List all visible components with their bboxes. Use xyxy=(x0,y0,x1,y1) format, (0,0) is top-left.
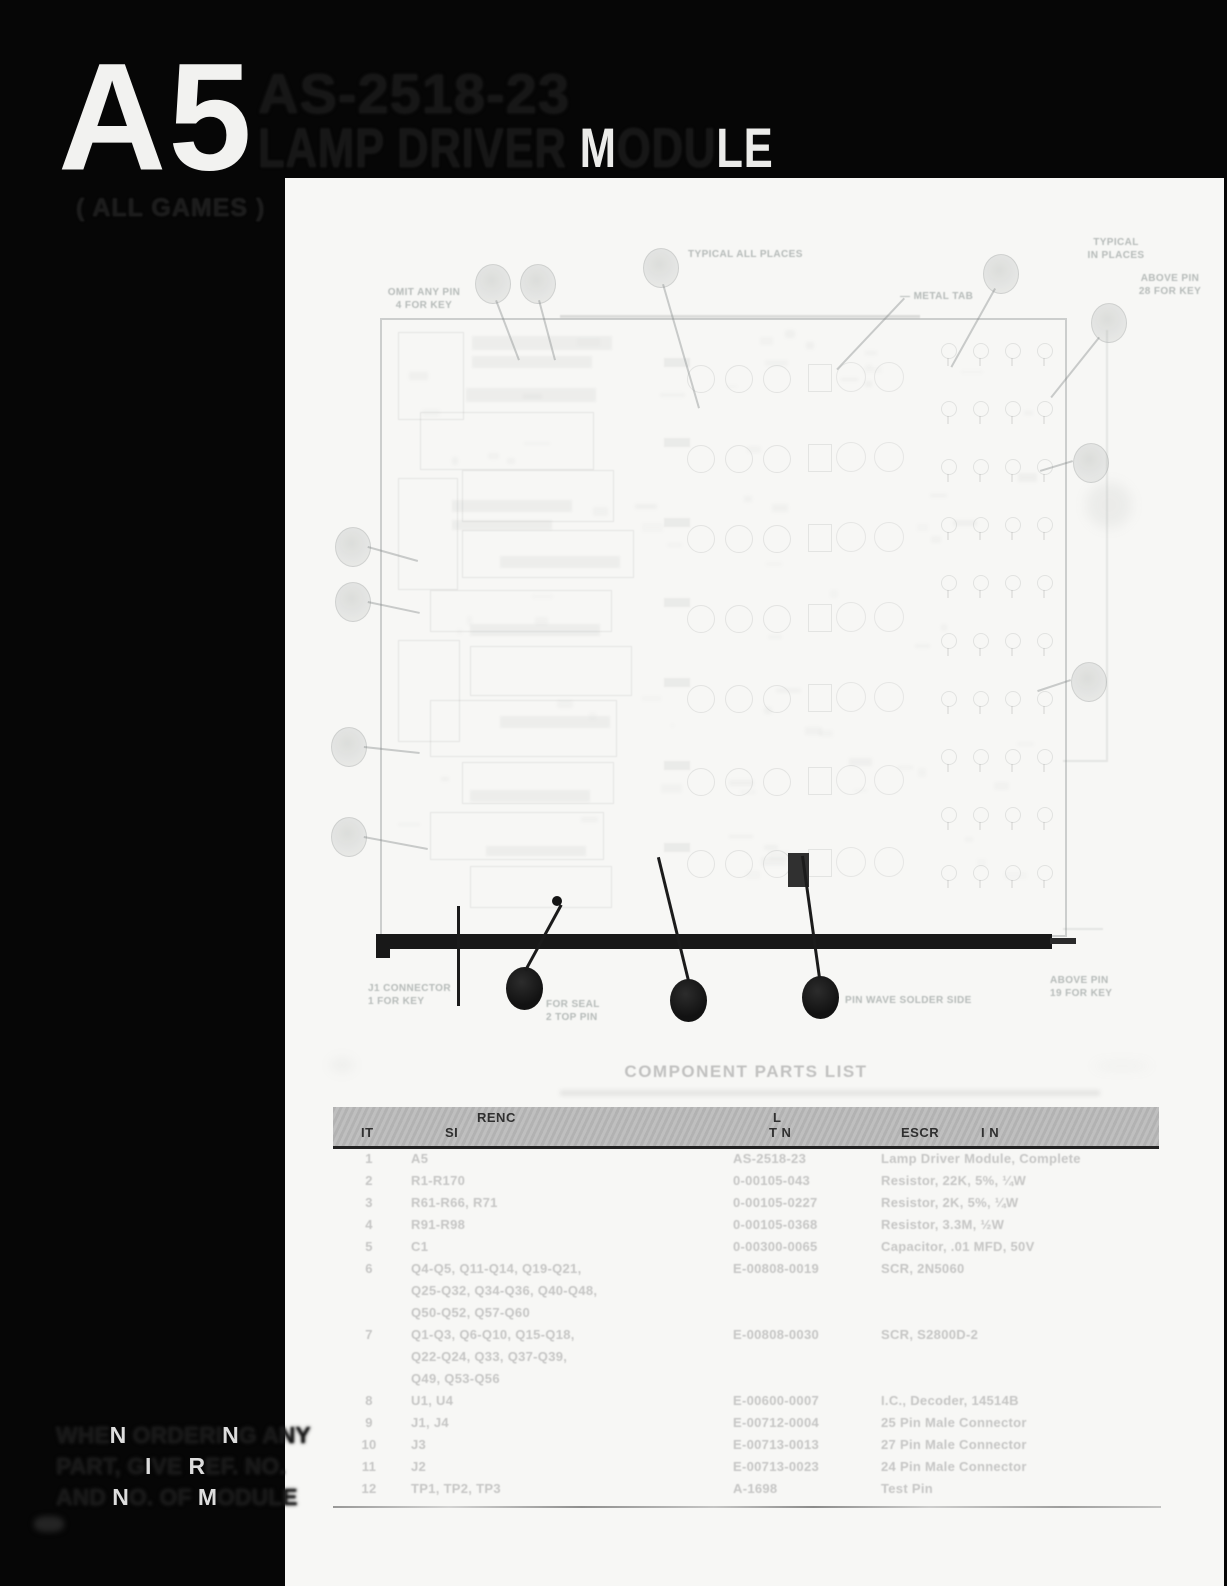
part-reference-designation: U1, U4 xyxy=(411,1393,453,1408)
table-bottom-rule xyxy=(333,1506,1161,1508)
part-reference-designation: Q1-Q3, Q6-Q10, Q15-Q18, xyxy=(411,1327,575,1342)
parts-table-row-line: 10J3E-00713-001327 Pin Male Connector xyxy=(333,1437,1159,1459)
col-part-no-header-top: L xyxy=(773,1110,781,1125)
callout-balloon-faint xyxy=(1073,443,1109,483)
text-segment: VE xyxy=(151,1453,188,1479)
parts-table-row-line: 8U1, U4E-00600-0007I.C., Decoder, 14514B xyxy=(333,1393,1159,1415)
text-segment: LE xyxy=(716,116,773,179)
part-reference-designation: C1 xyxy=(411,1239,428,1254)
module-name-title: LAMP DRIVER MODULE xyxy=(258,120,774,176)
part-reference-designation: R91-R98 xyxy=(411,1217,465,1232)
text-segment: N xyxy=(112,1484,129,1510)
text-segment: AND xyxy=(56,1484,112,1510)
part-description: SCR, 2N5060 xyxy=(881,1261,965,1276)
part-number: 0-00300-0065 xyxy=(733,1239,818,1254)
circuit-board-outline xyxy=(380,318,1067,937)
callout-label-wave-solder: PIN WAVE SOLDER SIDE xyxy=(845,994,1040,1007)
part-item-number: 4 xyxy=(353,1217,385,1232)
callout-balloon-solid xyxy=(506,967,543,1010)
parts-table-header: IT RENC SI L T N ESCR I N xyxy=(333,1107,1159,1149)
part-reference-designation: Q50-Q52, Q57-Q60 xyxy=(411,1305,530,1320)
callout-label-line: J1 CONNECTOR xyxy=(368,982,493,995)
all-games-subtitle: ( ALL GAMES ) xyxy=(76,194,265,223)
callout-label-seal-pin: FOR SEAL2 TOP PIN xyxy=(546,998,651,1024)
part-description: Test Pin xyxy=(881,1481,933,1496)
part-item-number: 9 xyxy=(353,1415,385,1430)
text-segment: G ANY xyxy=(239,1422,311,1448)
callout-balloon-solid xyxy=(802,976,839,1019)
callout-leader-line xyxy=(458,906,461,1006)
part-reference-designation: A5 xyxy=(411,1151,428,1166)
part-number: 0-00105-0227 xyxy=(733,1195,818,1210)
parts-table-row-line: 5C10-00300-0065Capacitor, .01 MFD, 50V xyxy=(333,1239,1159,1261)
part-reference-designation: R61-R66, R71 xyxy=(411,1195,498,1210)
callout-label-line: PIN WAVE SOLDER SIDE xyxy=(845,994,1040,1007)
text-segment: ORDERI xyxy=(126,1422,222,1448)
part-number: 0-00105-043 xyxy=(733,1173,810,1188)
part-reference-designation: Q4-Q5, Q11-Q14, Q19-Q21, xyxy=(411,1261,582,1276)
part-description: 25 Pin Male Connector xyxy=(881,1415,1027,1430)
callout-balloon-faint xyxy=(1091,303,1127,343)
parts-table-rows: 1A5AS-2518-23Lamp Driver Module, Complet… xyxy=(333,1151,1159,1503)
parts-table-row-line: 3R61-R66, R710-00105-0227Resistor, 2K, 5… xyxy=(333,1195,1159,1217)
parts-table-row-line: Q25-Q32, Q34-Q36, Q40-Q48, xyxy=(333,1283,1159,1305)
scan-smudge xyxy=(1086,482,1132,528)
callout-label-above-pin-top: ABOVE PIN28 FOR KEY xyxy=(1120,272,1220,298)
callout-balloon-faint xyxy=(475,264,511,304)
text-segment: EF. NO. xyxy=(205,1453,286,1479)
parts-table-row-line: Q50-Q52, Q57-Q60 xyxy=(333,1305,1159,1327)
parts-table-row-line: 12TP1, TP2, TP3A-1698Test Pin xyxy=(333,1481,1159,1503)
callout-label-typical-places: TYPICAL ALL PLACES xyxy=(688,248,858,261)
text-segment: ODU xyxy=(617,116,716,179)
callout-label-above-pin-bottom: ABOVE PIN19 FOR KEY xyxy=(1050,974,1155,1000)
part-reference-designation: R1-R170 xyxy=(411,1173,465,1188)
part-description: Resistor, 2K, 5%, ¼W xyxy=(881,1195,1019,1210)
col-description-header-a: ESCR xyxy=(901,1125,939,1140)
callout-balloon-faint xyxy=(520,264,556,304)
callout-label-line: TYPICAL xyxy=(1070,236,1162,249)
col-reference-header-bottom: SI xyxy=(445,1125,458,1140)
part-description: SCR, S2800D-2 xyxy=(881,1327,978,1342)
part-item-number: 5 xyxy=(353,1239,385,1254)
part-description: 27 Pin Male Connector xyxy=(881,1437,1027,1452)
col-reference-header-top: RENC xyxy=(477,1110,516,1125)
board-edge-notch xyxy=(376,948,390,958)
module-id-label: A5 xyxy=(58,40,254,193)
scanned-manual-page: A5 AS-2518-23 LAMP DRIVER MODULE ( ALL G… xyxy=(0,0,1227,1586)
callout-label-line: 19 FOR KEY xyxy=(1050,987,1155,1000)
part-description: 24 Pin Male Connector xyxy=(881,1459,1027,1474)
text-segment: M xyxy=(580,116,617,179)
part-item-number: 1 xyxy=(353,1151,385,1166)
part-description: Lamp Driver Module, Complete xyxy=(881,1151,1081,1166)
callout-label-typical-in-places: TYPICALIN PLACES xyxy=(1070,236,1162,262)
part-number: E-00808-0019 xyxy=(733,1261,819,1276)
part-description: Capacitor, .01 MFD, 50V xyxy=(881,1239,1035,1254)
callout-label-line: 4 FOR KEY xyxy=(368,299,480,312)
callout-label-line: 2 TOP PIN xyxy=(546,1011,651,1024)
col-description-header-b: I N xyxy=(981,1125,999,1140)
part-reference-designation: J3 xyxy=(411,1437,426,1452)
part-item-number: 6 xyxy=(353,1261,385,1276)
part-number: E-00600-0007 xyxy=(733,1393,819,1408)
callout-balloon-faint xyxy=(643,248,679,288)
callout-balloon-faint xyxy=(335,582,371,622)
text-segment: PART, G xyxy=(56,1453,145,1479)
parts-table-row-line: 11J2E-00713-002324 Pin Male Connector xyxy=(333,1459,1159,1481)
callout-label-line: ABOVE PIN xyxy=(1120,272,1220,285)
part-description: Resistor, 3.3M, ½W xyxy=(881,1217,1004,1232)
part-number: A-1698 xyxy=(733,1481,777,1496)
part-item-number: 3 xyxy=(353,1195,385,1210)
parts-table-row-line: 1A5AS-2518-23Lamp Driver Module, Complet… xyxy=(333,1151,1159,1173)
page-number-smudge xyxy=(34,1516,64,1532)
board-edge-connector-bar xyxy=(376,934,1052,949)
text-segment: O. OF xyxy=(129,1484,198,1510)
text-segment: N xyxy=(222,1422,239,1448)
part-item-number: 12 xyxy=(353,1481,385,1496)
part-reference-designation: Q22-Q24, Q33, Q37-Q39, xyxy=(411,1349,567,1364)
parts-table-row-line: 9J1, J4E-00712-000425 Pin Male Connector xyxy=(333,1415,1159,1437)
part-number: E-00808-0030 xyxy=(733,1327,819,1342)
text-segment: WHE xyxy=(56,1422,110,1448)
callout-balloon-faint xyxy=(331,727,367,767)
parts-table-row-line: 7Q1-Q3, Q6-Q10, Q15-Q18,E-00808-0030SCR,… xyxy=(333,1327,1159,1349)
text-segment: R xyxy=(189,1453,206,1479)
part-item-number: 7 xyxy=(353,1327,385,1342)
part-item-number: 8 xyxy=(353,1393,385,1408)
callout-balloon-faint xyxy=(983,254,1019,294)
parts-table-row-line: 4R91-R980-00105-0368Resistor, 3.3M, ½W xyxy=(333,1217,1159,1239)
text-segment: M xyxy=(198,1484,217,1510)
part-reference-designation: Q49, Q53-Q56 xyxy=(411,1371,500,1386)
col-part-no-header-bottom: T N xyxy=(769,1125,791,1140)
margin-ordering-note: WHEN ORDERING ANYPART, GIVE REF. NO.AND … xyxy=(56,1420,316,1513)
part-item-number: 11 xyxy=(353,1459,385,1474)
text-segment: ODULE xyxy=(217,1484,298,1510)
callout-label-line: FOR SEAL xyxy=(546,998,651,1011)
callout-balloon-faint xyxy=(1071,662,1107,702)
part-reference-designation: Q25-Q32, Q34-Q36, Q40-Q48, xyxy=(411,1283,597,1298)
part-description: Resistor, 22K, 5%, ¼W xyxy=(881,1173,1026,1188)
part-number: E-00712-0004 xyxy=(733,1415,819,1430)
callout-label-line: IN PLACES xyxy=(1070,249,1162,262)
parts-list-heading: COMPONENT PARTS LIST xyxy=(333,1062,1159,1082)
part-reference-designation: J2 xyxy=(411,1459,426,1474)
callout-label-line: OMIT ANY PIN xyxy=(368,286,480,299)
part-reference-designation: J1, J4 xyxy=(411,1415,449,1430)
callout-label-line: 28 FOR KEY xyxy=(1120,285,1220,298)
callout-label-line: TYPICAL ALL PLACES xyxy=(688,248,858,261)
parts-table-row-line: Q22-Q24, Q33, Q37-Q39, xyxy=(333,1349,1159,1371)
text-segment: N xyxy=(110,1422,127,1448)
text-segment: LAMP DRIVER xyxy=(258,116,580,179)
board-edge-extension xyxy=(1050,938,1076,944)
module-part-number-title: AS-2518-23 xyxy=(258,66,570,122)
part-description: I.C., Decoder, 14514B xyxy=(881,1393,1019,1408)
part-item-number: 10 xyxy=(353,1437,385,1452)
margin-note-line: PART, GIVE REF. NO. xyxy=(56,1451,316,1482)
part-number: AS-2518-23 xyxy=(733,1151,806,1166)
callout-label-line: ABOVE PIN xyxy=(1050,974,1155,987)
part-reference-designation: TP1, TP2, TP3 xyxy=(411,1481,501,1496)
col-item-header: IT xyxy=(361,1125,374,1140)
callout-balloon-faint xyxy=(331,817,367,857)
parts-table-row-line: Q49, Q53-Q56 xyxy=(333,1371,1159,1393)
part-number: 0-00105-0368 xyxy=(733,1217,818,1232)
part-number: E-00713-0013 xyxy=(733,1437,819,1452)
parts-table-row-line: 2R1-R1700-00105-043Resistor, 22K, 5%, ¼W xyxy=(333,1173,1159,1195)
parts-table-row-line: 6Q4-Q5, Q11-Q14, Q19-Q21,E-00808-0019SCR… xyxy=(333,1261,1159,1283)
margin-note-line: WHEN ORDERING ANY xyxy=(56,1420,316,1451)
callout-balloon-solid xyxy=(670,979,707,1022)
callout-balloon-faint xyxy=(335,527,371,567)
callout-label-connector-key: J1 CONNECTOR1 FOR KEY xyxy=(368,982,493,1008)
callout-label-line: 1 FOR KEY xyxy=(368,995,493,1008)
margin-note-line: AND NO. OF MODULE xyxy=(56,1482,316,1513)
part-number: E-00713-0023 xyxy=(733,1459,819,1474)
callout-label-omit-pin-key: OMIT ANY PIN4 FOR KEY xyxy=(368,286,480,312)
part-item-number: 2 xyxy=(353,1173,385,1188)
scan-streak xyxy=(560,1090,1100,1096)
